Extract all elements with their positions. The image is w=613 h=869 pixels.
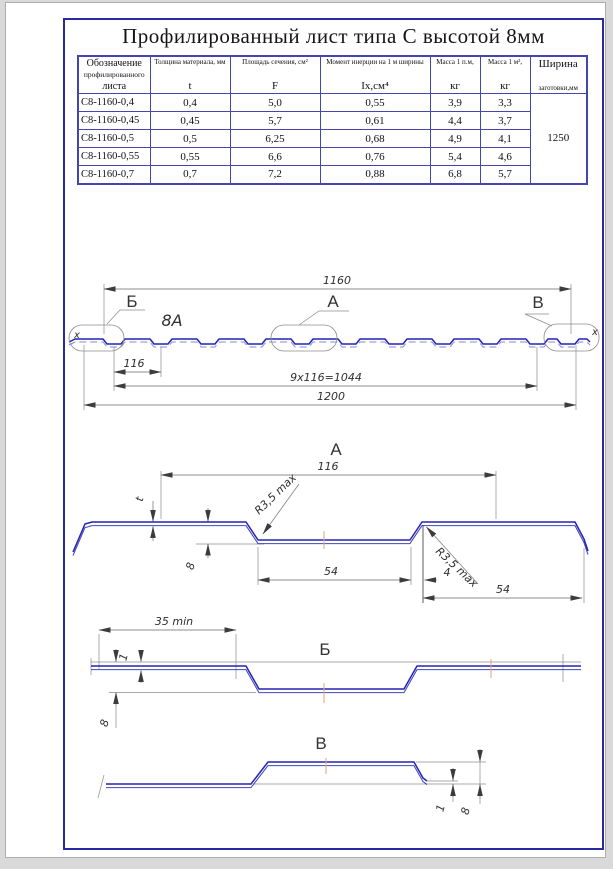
dimension-lines — [99, 630, 236, 706]
dim-label-8: 8 — [183, 561, 197, 571]
dim-label-8: 8 — [458, 806, 472, 816]
profile-line-bottom — [69, 342, 590, 347]
axis-mark-left: x — [73, 330, 80, 341]
dim-label-116: 116 — [124, 357, 145, 370]
main-section-view: 1160 116 9x116=1044 1200 Б А В 8А x x — [69, 274, 599, 410]
dim-label-1: 1 — [116, 652, 130, 662]
dim-label-35min: 35 min — [155, 615, 193, 628]
detail-callout-ovals — [69, 324, 599, 351]
detail-b-view: Б 35 min 1 8 — [91, 615, 581, 728]
dim-label-116: 116 — [318, 460, 339, 473]
dim-label-4: 4 — [444, 566, 451, 579]
dim-label-1200: 1200 — [317, 390, 345, 403]
drawing-sheet: Профилированный лист типа С высотой 8мм … — [5, 2, 606, 858]
profile-line — [73, 522, 588, 552]
dim-label-1160: 1160 — [323, 274, 351, 287]
drawing-canvas: 1160 116 9x116=1044 1200 Б А В 8А x x А — [6, 3, 613, 869]
dim-label-54-top: 54 — [496, 583, 510, 596]
detail-a-title: А — [330, 440, 342, 459]
detail-v-view: В 1 8 — [98, 734, 486, 816]
dim-label-8: 8 — [97, 718, 111, 728]
extension-lines — [161, 471, 584, 603]
detail-v-title: В — [315, 734, 326, 753]
extension-lines — [98, 762, 486, 804]
dim-label-t: t — [133, 495, 147, 503]
dimension-lines — [153, 475, 582, 598]
detail-b-title: Б — [319, 640, 330, 659]
radius-label-bottom: R3,5 max — [433, 545, 481, 591]
dim-label-pitch-total: 9x116=1044 — [290, 371, 362, 384]
dimension-lines — [453, 749, 480, 799]
detail-a-view: А — [73, 440, 588, 603]
callout-label-v: В — [532, 293, 543, 312]
callout-label-a: А — [327, 292, 339, 311]
dim-label-54-bottom: 54 — [324, 565, 338, 578]
dim-label-1: 1 — [433, 803, 447, 813]
extension-lines — [91, 634, 581, 728]
callout-label-b: Б — [126, 292, 137, 311]
note-8a: 8А — [161, 311, 182, 330]
axis-mark-right: x — [591, 327, 598, 338]
